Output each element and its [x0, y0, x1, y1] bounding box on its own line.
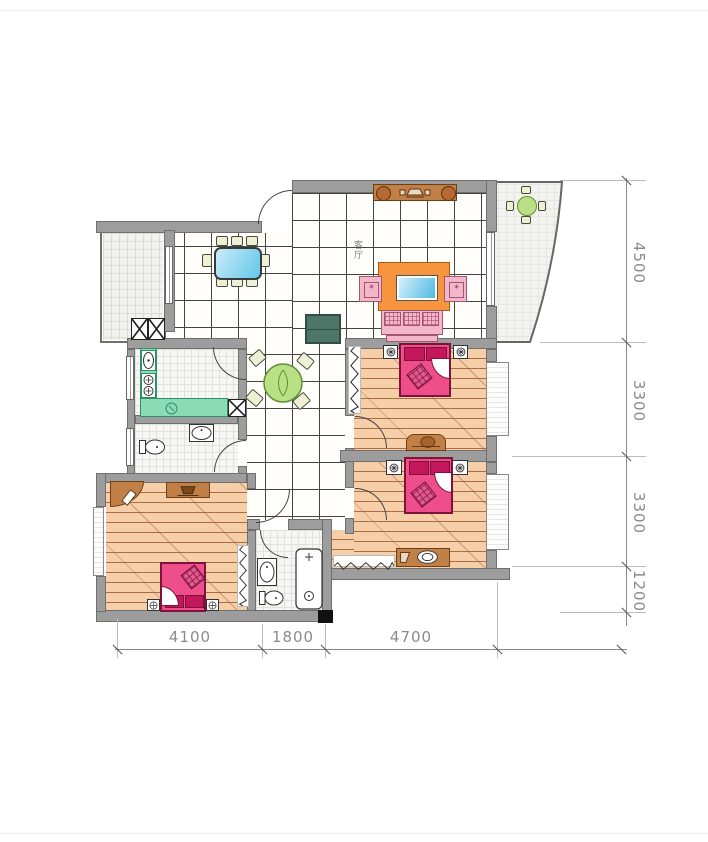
radiator-icon — [237, 545, 249, 607]
dining-chair — [216, 236, 228, 246]
nightstand — [453, 345, 468, 359]
desk — [166, 482, 210, 498]
wall — [247, 473, 256, 489]
double-bed — [404, 457, 453, 514]
balcony-chair — [521, 216, 531, 224]
double-bed — [160, 562, 206, 612]
column — [318, 610, 333, 623]
vanity — [396, 548, 450, 567]
ac-unit-icon — [148, 318, 165, 340]
flower-pot-icon — [441, 186, 456, 201]
bay-window — [486, 362, 509, 436]
dim-label-bottom-4100: 4100 — [165, 628, 215, 646]
extension-line — [262, 624, 263, 658]
armchair: * — [359, 276, 382, 302]
extension-line — [325, 624, 326, 658]
sofa-cushion — [422, 312, 439, 326]
table-lamp-icon — [398, 185, 432, 200]
wall — [486, 349, 497, 362]
wall — [486, 462, 497, 474]
dining-chair — [246, 236, 258, 246]
dining-table — [214, 247, 262, 280]
extension-line — [117, 618, 118, 658]
page-frame-bottom — [0, 833, 708, 834]
kitchen-sink-icon — [141, 350, 156, 371]
balcony-chair — [521, 186, 531, 194]
radiator-icon — [333, 555, 395, 567]
nightstand — [452, 460, 468, 475]
dining-chair — [231, 236, 243, 246]
window — [126, 356, 134, 400]
wall — [486, 180, 497, 232]
window — [486, 232, 495, 306]
wall — [96, 473, 106, 507]
wall — [96, 610, 332, 622]
page-frame-top — [0, 10, 708, 11]
double-bed — [399, 343, 451, 397]
bathtub-icon — [295, 548, 323, 610]
living-room-label: 客厅 — [351, 240, 364, 260]
dresser — [406, 434, 446, 451]
fridge-icon — [228, 399, 246, 417]
dim-label-right-4500: 4500 — [630, 241, 648, 285]
sink-icon — [257, 558, 277, 586]
extension-line — [540, 342, 646, 343]
wall — [96, 221, 262, 233]
dim-label-bottom-4700: 4700 — [386, 628, 436, 646]
kitchen-counter — [140, 398, 228, 417]
nightstand — [386, 460, 402, 475]
flower-pot-icon — [376, 186, 391, 201]
extension-line — [560, 180, 646, 181]
extension-line — [497, 582, 498, 658]
bay-window — [93, 507, 104, 576]
wall — [486, 436, 497, 462]
toilet-icon — [139, 438, 167, 456]
nightstand — [147, 599, 160, 611]
window — [126, 428, 134, 466]
radiator-icon — [348, 346, 361, 414]
nightstand — [206, 599, 219, 611]
wall — [96, 576, 106, 612]
dim-label-right-3300b: 3300 — [630, 491, 648, 535]
toilet-icon — [259, 589, 285, 607]
sink-icon — [189, 424, 214, 442]
floor-plan-canvas: * * 客厅 — [0, 0, 708, 842]
burner-icon — [165, 402, 178, 415]
entry-door-arc — [258, 190, 292, 224]
sofa-cushion — [384, 312, 401, 326]
bay-window — [486, 474, 509, 550]
dimension-chain-bottom — [115, 649, 627, 650]
dim-label-right-3300a: 3300 — [630, 379, 648, 423]
wall — [345, 518, 354, 534]
balcony-chair — [506, 201, 514, 211]
balcony-table — [517, 196, 537, 216]
nightstand — [383, 345, 398, 359]
armchair: * — [444, 276, 467, 302]
balcony-chair — [538, 201, 546, 211]
dim-label-bottom-1800: 1800 — [268, 628, 318, 646]
cabinet-darkgreen — [305, 314, 341, 344]
sofa-cushion — [403, 312, 420, 326]
ac-unit-icon — [131, 318, 148, 340]
hall-round-table — [262, 362, 304, 404]
dimension-chain-right — [626, 178, 627, 626]
tv-screen — [397, 276, 437, 300]
stove-icon — [141, 373, 156, 398]
window — [165, 246, 173, 304]
wall — [322, 519, 332, 612]
dim-label-right-1200: 1200 — [630, 569, 648, 613]
dining-chair — [202, 254, 212, 267]
sofa-front — [386, 335, 438, 342]
